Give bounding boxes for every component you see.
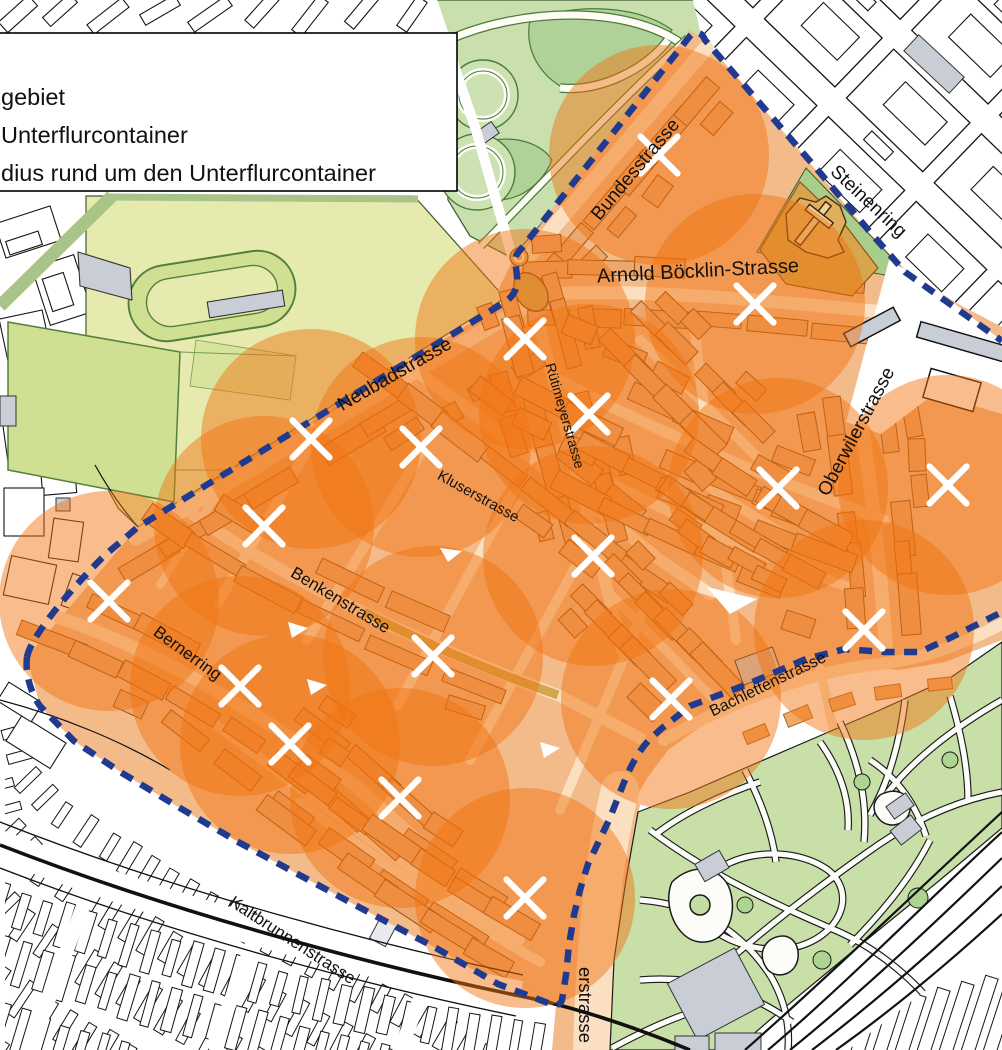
svg-text:dius rund um den Unterflurcont: dius rund um den Unterflurcontainer xyxy=(1,160,376,186)
svg-text:gebiet: gebiet xyxy=(1,84,65,110)
svg-text:erstrasse: erstrasse xyxy=(575,967,596,1043)
svg-text:Unterflurcontainer: Unterflurcontainer xyxy=(1,122,188,148)
